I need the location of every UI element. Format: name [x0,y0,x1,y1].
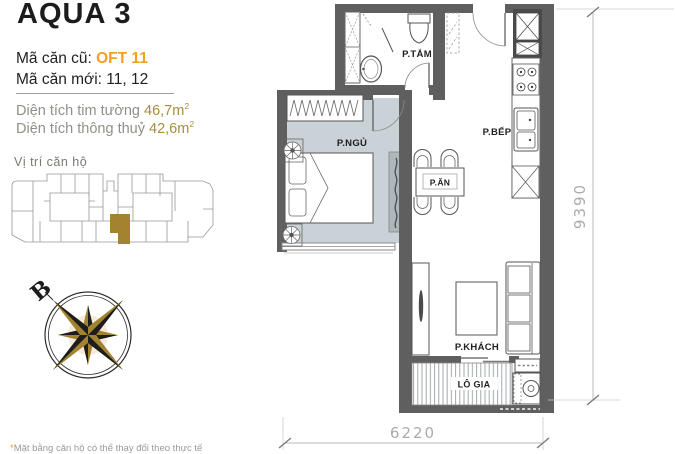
room-label-dining: P.ĂN [430,178,450,188]
wardrobe [287,95,363,121]
room-label-kitchen: P.BẾP [483,127,512,138]
chair [414,150,431,168]
dimension-height: 9390 [571,183,589,229]
bedroom-window [282,243,395,253]
bed [285,153,373,223]
room-label-bathroom: P.TẮM [402,49,432,60]
entry-door [473,13,505,46]
room-label-loggia: LÔ GIA [458,379,491,390]
chair [441,150,458,168]
fridge [516,13,539,55]
washing-machine [513,373,540,404]
dimension-right: 9390 [548,7,674,405]
stove [513,64,539,95]
coffee-table [456,282,497,335]
dimension-width: 6220 [390,424,436,442]
shower-screen [382,28,393,52]
lower-cabinet [512,166,539,198]
bathroom-shaft [345,12,360,83]
entry-shaft [447,13,459,53]
shower-head-line [363,14,371,26]
kitchen-sink [514,108,538,151]
sofa [506,262,540,354]
bathroom-door [405,63,429,88]
toilet [408,14,430,43]
floorplan: P.TẮM P.NGỦ P.BẾP P.ĂN P.KHÁCH LÔ GIA 93… [0,0,675,450]
dimension-bottom: 6220 [279,417,549,450]
room-label-living: P.KHÁCH [455,342,499,353]
laundry-shelf [515,359,540,372]
room-label-bedroom: P.NGỦ [337,137,367,149]
chair [414,197,431,215]
tv [419,290,423,322]
loggia-sliding-door [461,358,509,362]
chair [441,197,458,215]
bathroom-sink [361,56,382,82]
